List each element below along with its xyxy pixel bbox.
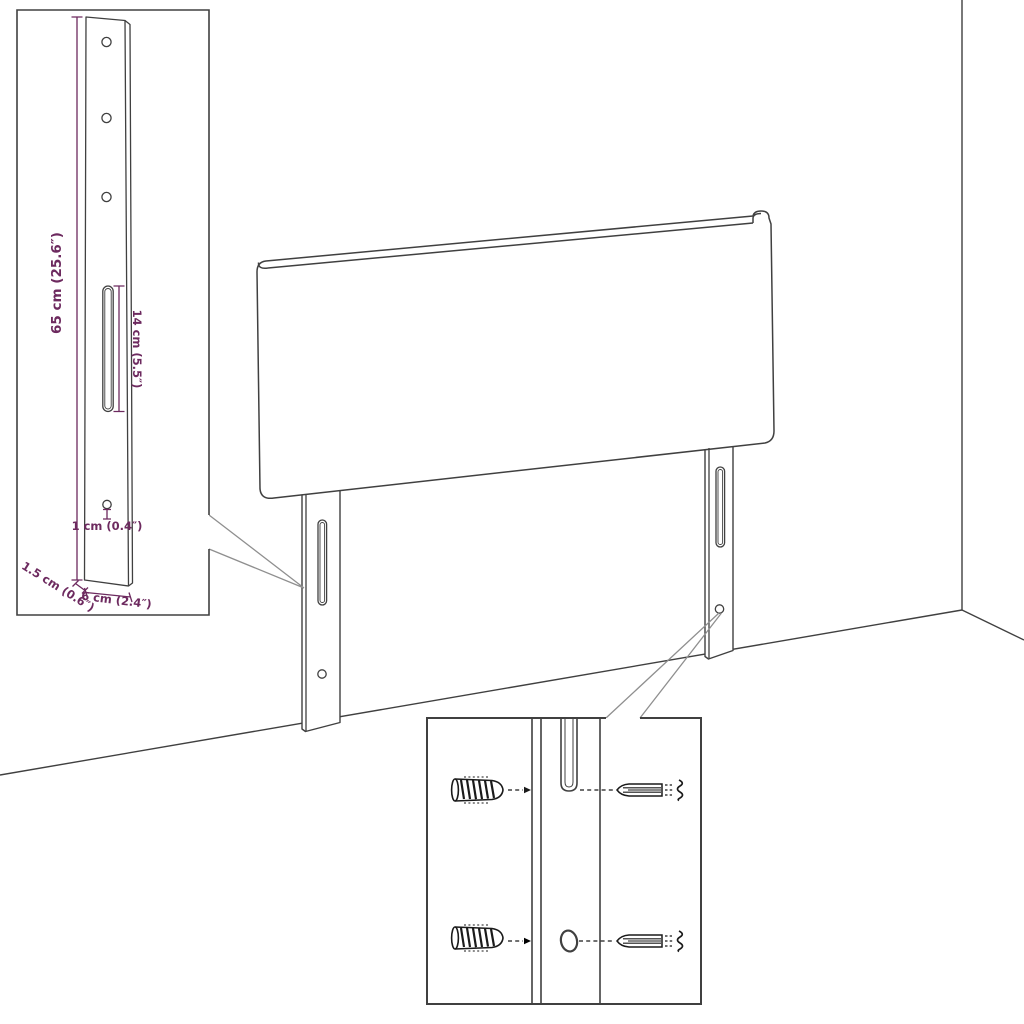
mounting-inset	[427, 718, 701, 1004]
dim-hole-label: 1 cm (0.4″)	[72, 519, 143, 533]
diagram-canvas: 65 cm (25.6″) 14 cm (5.5″) 1 cm (0.4″) 1…	[0, 0, 1024, 1024]
left-leg	[302, 485, 340, 732]
dim-slot-label: 14 cm (5.5″)	[130, 310, 144, 389]
mounting-inset-bg	[427, 718, 701, 1004]
bracket-drawing	[85, 17, 133, 586]
dimension-inset: 65 cm (25.6″) 14 cm (5.5″) 1 cm (0.4″) 1…	[17, 10, 209, 615]
dim-height-label: 65 cm (25.6″)	[49, 232, 65, 334]
